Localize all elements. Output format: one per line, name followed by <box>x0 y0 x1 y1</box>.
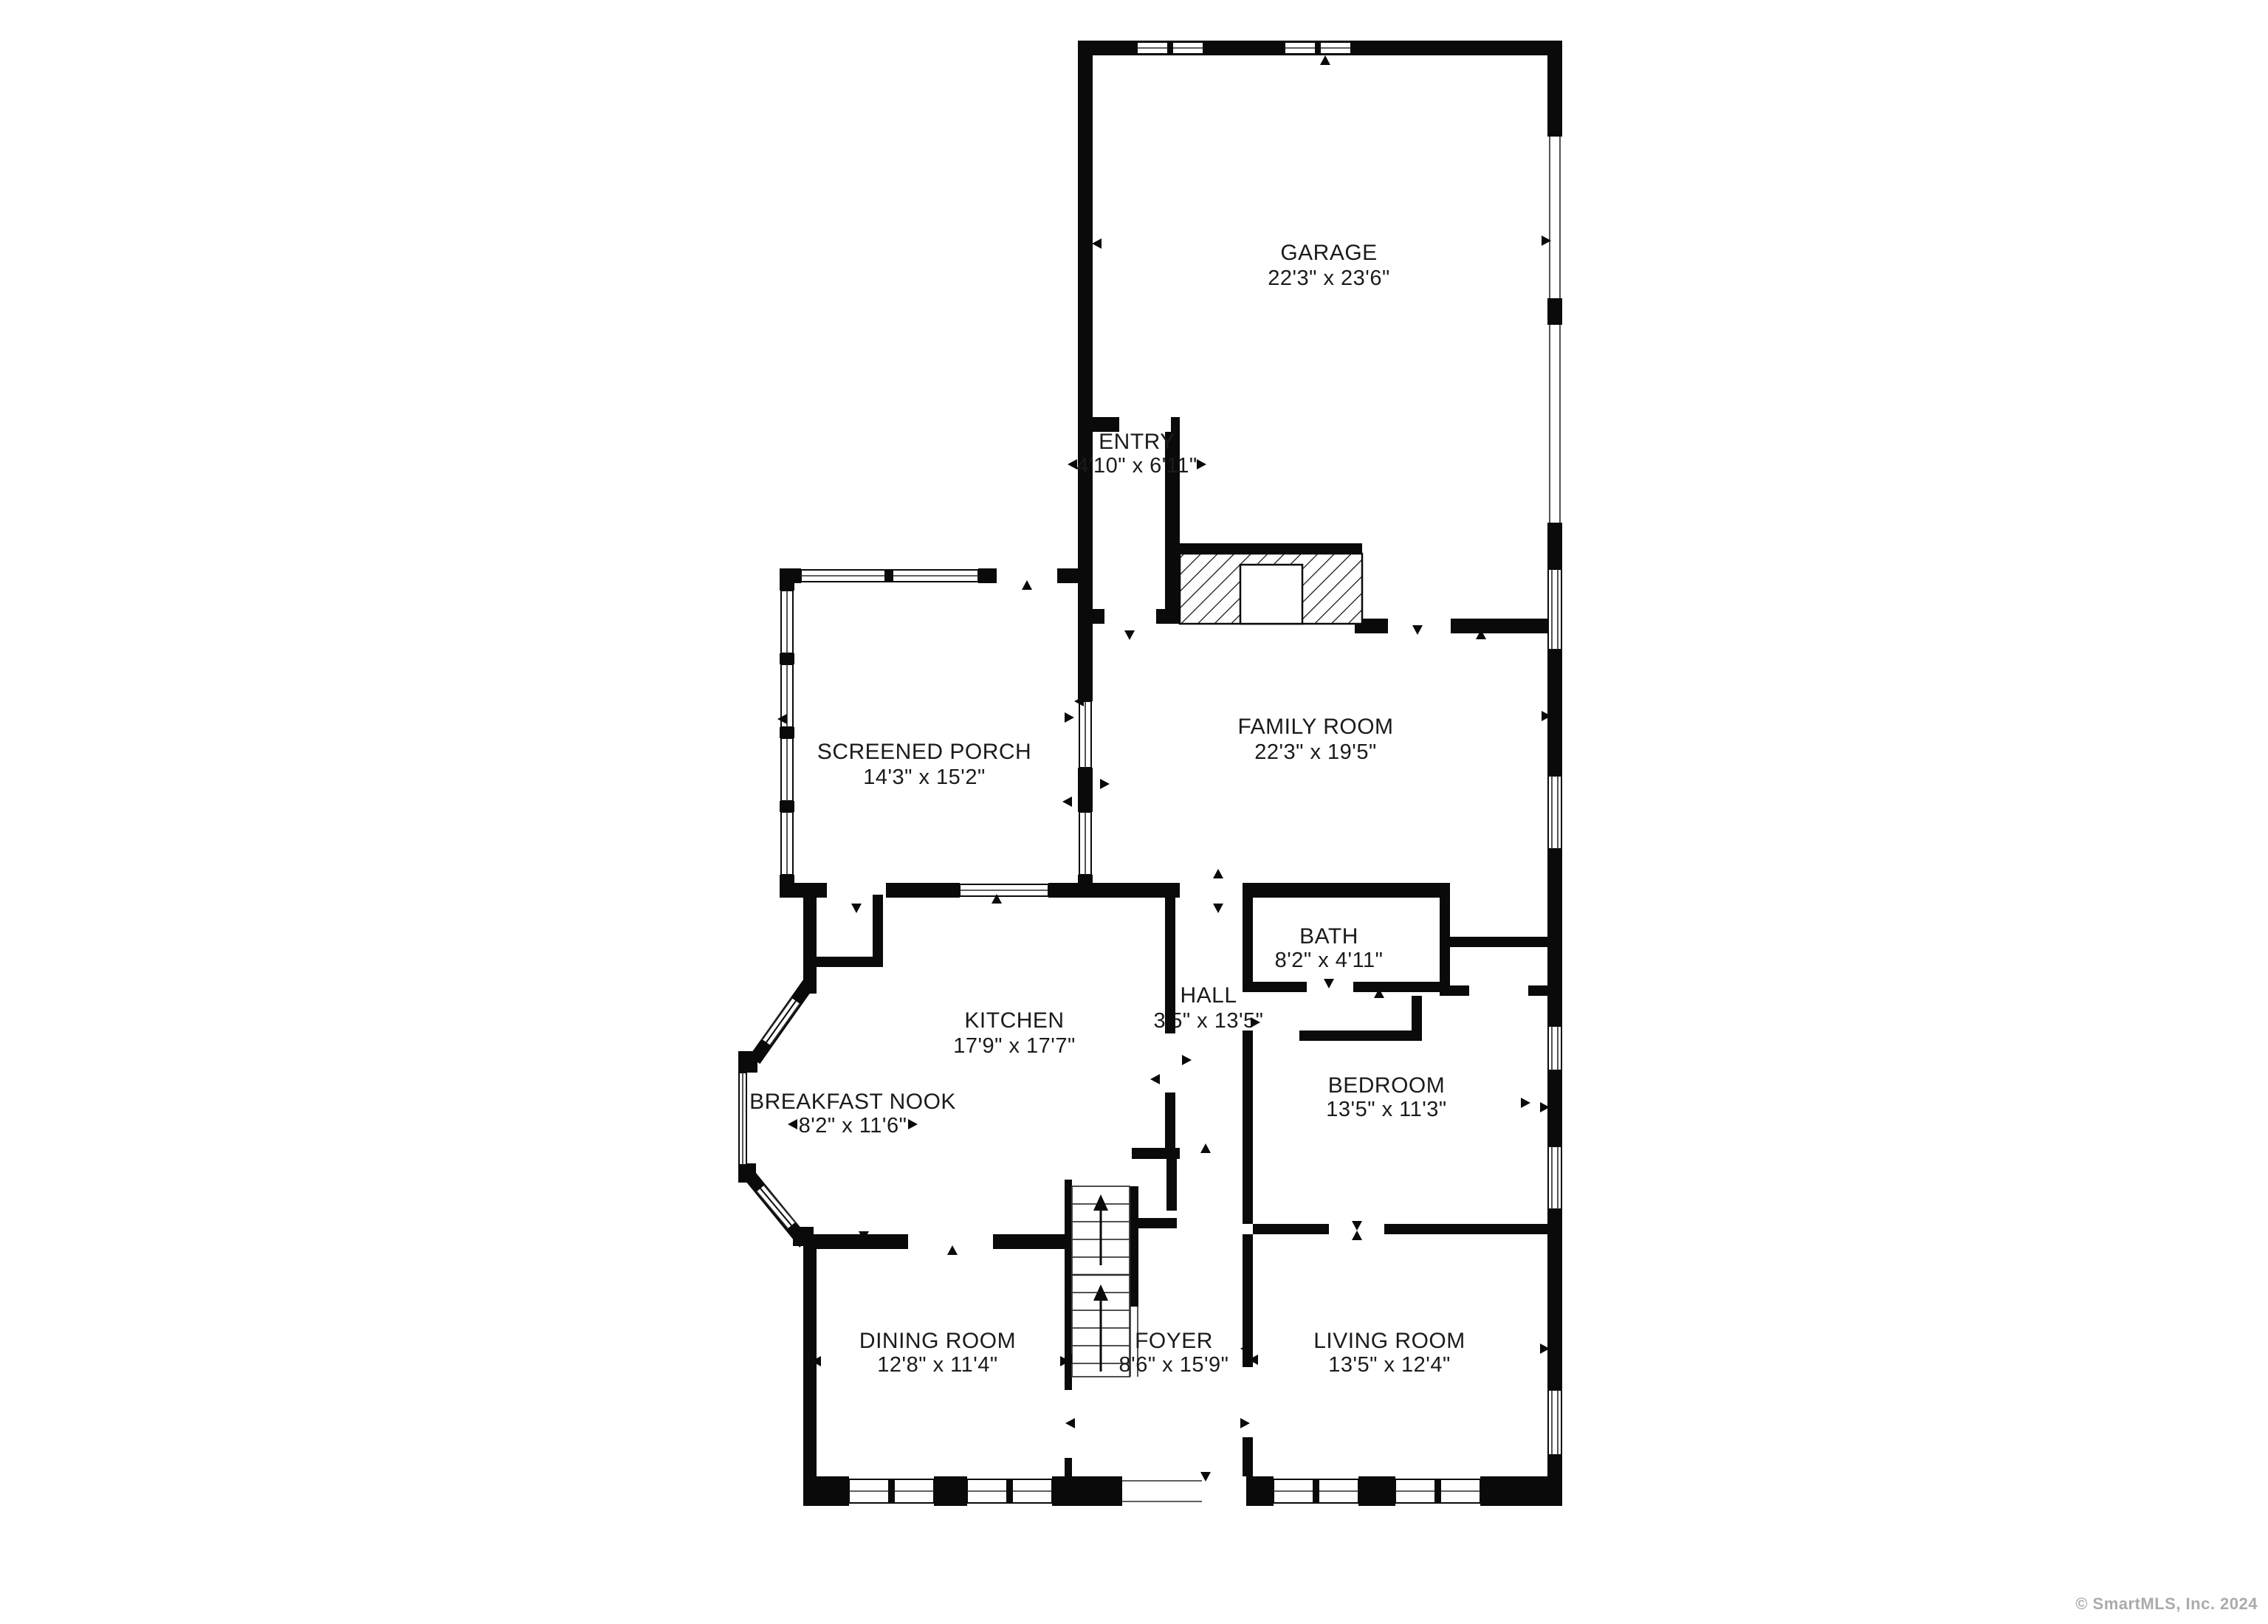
garage-door-opening <box>1547 325 1562 523</box>
floor-plan-drawing: HALL 3'5" x 13'5" <box>0 0 2268 1624</box>
window <box>1548 1146 1561 1209</box>
room-dims: 13'5" x 12'4" <box>1328 1353 1451 1377</box>
room-name: BATH <box>1299 924 1358 949</box>
fireplace <box>1180 554 1362 624</box>
room-name: LIVING ROOM <box>1313 1329 1465 1353</box>
floor-plan-page: HALL 3'5" x 13'5" <box>0 0 2268 1624</box>
firebox <box>1240 565 1302 624</box>
room-dims: 8'2" x 11'6" <box>799 1114 907 1138</box>
window <box>1079 812 1091 875</box>
room-dims: 4'10" x 6'11" <box>1076 454 1197 478</box>
window <box>1395 1479 1480 1503</box>
room-name: BREAKFAST NOOK <box>749 1090 956 1114</box>
room-label-living-room: LIVING ROOM 13'5" x 12'4" <box>1313 1329 1465 1377</box>
room-name: FAMILY ROOM <box>1237 715 1393 739</box>
room-dims: 8'2" x 4'11" <box>1275 949 1384 972</box>
window <box>1285 42 1351 54</box>
window <box>781 738 793 801</box>
room-dims: 13'5" x 11'3" <box>1326 1098 1446 1121</box>
window <box>781 591 793 653</box>
window <box>1274 1479 1358 1503</box>
window <box>1548 776 1561 849</box>
window <box>1079 701 1091 768</box>
window <box>1548 1390 1561 1455</box>
front-stoop-opening <box>1122 1476 1202 1506</box>
room-dims: 14'3" x 15'2" <box>863 765 986 789</box>
copyright-notice: © SmartMLS, Inc. 2024 <box>2075 1594 2258 1613</box>
window <box>801 570 978 582</box>
room-name: SCREENED PORCH <box>817 740 1031 764</box>
room-label-bedroom: BEDROOM 13'5" x 11'3" <box>1326 1073 1446 1121</box>
room-dims: 22'3" x 19'5" <box>1254 740 1377 764</box>
room-dims: 12'8" x 11'4" <box>877 1353 997 1377</box>
garage-door-opening <box>1547 137 1562 298</box>
room-dims: 17'9" x 17'7" <box>953 1034 1076 1058</box>
room-dims: 8'6" x 15'9" <box>1119 1353 1229 1377</box>
room-name: FOYER <box>1135 1329 1213 1353</box>
room-name: ENTRY <box>1099 430 1175 454</box>
room-name: GARAGE <box>1280 241 1377 265</box>
room-dims: 22'3" x 23'6" <box>1268 266 1390 290</box>
window <box>1548 1026 1561 1070</box>
room-label-dining-room: DINING ROOM 12'8" x 11'4" <box>859 1329 1016 1377</box>
staircase <box>1072 1186 1138 1377</box>
canvas-background <box>0 0 2268 1624</box>
window <box>960 884 1048 896</box>
room-name: DINING ROOM <box>859 1329 1016 1353</box>
window <box>781 812 793 875</box>
room-name: HALL <box>1180 983 1237 1008</box>
room-name: KITCHEN <box>964 1008 1064 1033</box>
room-label-foyer: FOYER 8'6" x 15'9" <box>1119 1329 1229 1377</box>
window <box>1137 42 1203 54</box>
window <box>967 1479 1052 1503</box>
room-name: BEDROOM <box>1328 1073 1446 1098</box>
window <box>1548 569 1561 650</box>
window <box>849 1479 934 1503</box>
